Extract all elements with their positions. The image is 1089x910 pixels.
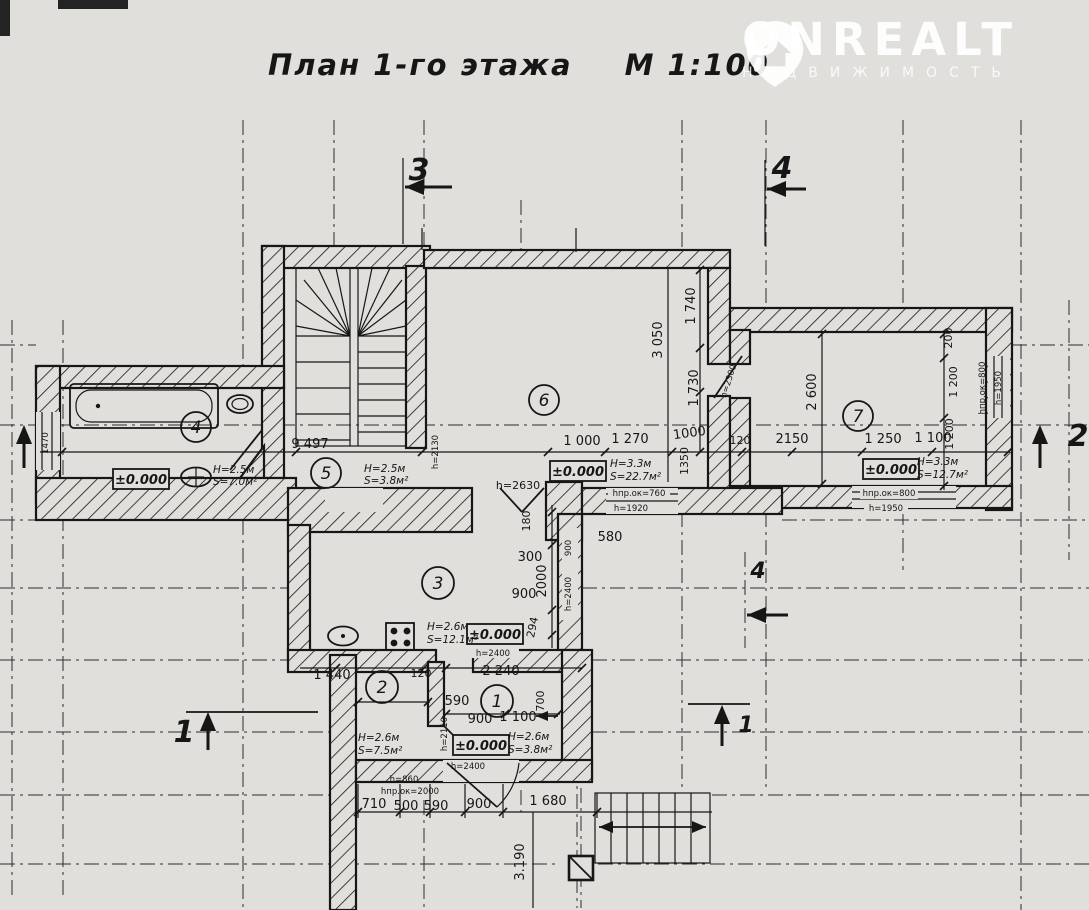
dim-9497: 9 497 xyxy=(291,437,328,452)
gas-stove xyxy=(386,623,414,650)
dim-900-wall: 900 xyxy=(564,540,574,556)
note-h2400-wall: h=2400 xyxy=(564,577,574,611)
note-h1920: h=1920 xyxy=(614,504,648,514)
elevation-room6: ±0.000 xyxy=(552,465,604,480)
room3-height: H=2.6м xyxy=(427,621,468,633)
dim-1350: 1350 xyxy=(678,447,691,475)
dim-1200a: 1 200 xyxy=(947,366,960,398)
section-1-right-label: 1 xyxy=(738,713,753,738)
room-circle-5: 5 xyxy=(321,464,332,484)
dim-2240: 2 240 xyxy=(482,664,519,679)
entrance-stairs xyxy=(569,793,710,880)
dim-700: 700 xyxy=(534,691,547,712)
dim-900a: 900 xyxy=(512,587,537,602)
elevation-room7: ±0.000 xyxy=(865,463,917,478)
elevation-room1: ±0.000 xyxy=(455,739,507,754)
note-h2130: h=2130 xyxy=(431,435,441,469)
section-3-label: 3 xyxy=(409,153,430,188)
dim-180: 180 xyxy=(520,511,533,532)
note-h2400b: h=2400 xyxy=(451,762,485,772)
dim-2150: 2150 xyxy=(775,432,808,447)
dim-580: 580 xyxy=(598,530,623,545)
dim-200: 200 xyxy=(942,328,955,349)
room-circle-7: 7 xyxy=(853,407,864,427)
room5-area: S=3.8м² xyxy=(364,475,409,487)
staircase xyxy=(296,268,406,446)
dim-1000a: 1 000 xyxy=(563,434,600,449)
room6-area: S=22.7м² xyxy=(610,471,662,483)
dim-1470: 1470 xyxy=(41,432,51,454)
dim-1250: 1 250 xyxy=(864,432,901,447)
room-circle-6: 6 xyxy=(539,391,550,411)
room3-area: S=12.1м² xyxy=(427,634,479,646)
section-2-right-label: 2 xyxy=(1068,419,1089,454)
room2-height: H=2.6м xyxy=(358,732,399,744)
note-hpo800a: hпр.ок=800 xyxy=(978,362,988,415)
dim-1740: 1 740 xyxy=(684,287,699,324)
dim-590b: 590 xyxy=(424,799,449,814)
room5-height: H=2.5м xyxy=(364,463,405,475)
dim-590a: 590 xyxy=(445,694,470,709)
note-h2400a: h=2400 xyxy=(476,649,510,659)
dim-1000b: 1000 xyxy=(672,424,707,443)
dim-120a: 120 xyxy=(730,434,751,447)
dim-1680: 1 680 xyxy=(529,794,566,809)
note-hpo800b: hпр.ок=800 xyxy=(863,489,916,499)
dim-2000: 2000 xyxy=(535,564,550,597)
dim-1730: 1 730 xyxy=(687,369,702,406)
room2-area: S=7.5м² xyxy=(358,745,403,757)
room1-height: H=2.6м xyxy=(508,731,549,743)
section-4-top-label: 4 xyxy=(771,151,793,186)
dim-3050: 3 050 xyxy=(651,321,666,358)
room4-height: H=2.5м xyxy=(213,464,254,476)
section-4-bottom-label: 4 xyxy=(749,559,765,584)
room6-height: H=3.3м xyxy=(610,458,651,470)
note-h2110: h=2110 xyxy=(440,717,450,751)
room-circle-1: 1 xyxy=(492,692,503,712)
room-circle-4: 4 xyxy=(191,418,202,438)
dim-2600: 2 600 xyxy=(805,373,820,410)
dim-1440: 1 440 xyxy=(313,668,350,683)
scan-artifacts xyxy=(0,0,128,36)
walls xyxy=(36,246,1012,910)
section-1-left-label: 1 xyxy=(174,715,195,750)
room4-area: S=7.0м² xyxy=(213,476,258,488)
room1-area: S=3.8м² xyxy=(508,744,553,756)
dim-1200b: 1 200 xyxy=(943,418,956,450)
room7-area: S=12.7м² xyxy=(917,469,969,481)
floorplan-scan: План 1-го этажаМ 1:100 ONREALT НЕДВИЖИМО… xyxy=(0,0,1089,910)
note-h2300: h=2300 xyxy=(719,364,739,400)
dim-294: 294 xyxy=(524,616,541,639)
dim-300: 300 xyxy=(518,550,543,565)
dim-1100b: 1 100 xyxy=(499,710,536,725)
dim-500: 500 xyxy=(394,799,419,814)
note-h1950a: h=1950 xyxy=(994,371,1004,405)
dim-120b: 120 xyxy=(411,667,432,680)
floorplan-drawing: 3 4 4 1 1 2 xyxy=(0,0,1089,910)
room-circle-2: 2 xyxy=(377,678,388,698)
dim-710: 710 xyxy=(362,797,387,812)
note-h860: h=860 xyxy=(390,775,419,785)
toilet xyxy=(227,395,253,413)
room-circle-3: 3 xyxy=(433,574,444,594)
dim-900b: 900 xyxy=(467,797,492,812)
elevation-room4: ±0.000 xyxy=(115,473,167,488)
dim-3190: 3.190 xyxy=(513,843,528,880)
note-hpo760: hпр.ок=760 xyxy=(613,489,666,499)
note-h1950b: h=1950 xyxy=(869,504,903,514)
note-h2630: h=2630 xyxy=(496,479,540,492)
dim-1270: 1 270 xyxy=(611,432,648,447)
note-h2000: hпр.ок=2000 xyxy=(381,787,439,797)
room7-height: H=3.3м xyxy=(917,456,958,468)
